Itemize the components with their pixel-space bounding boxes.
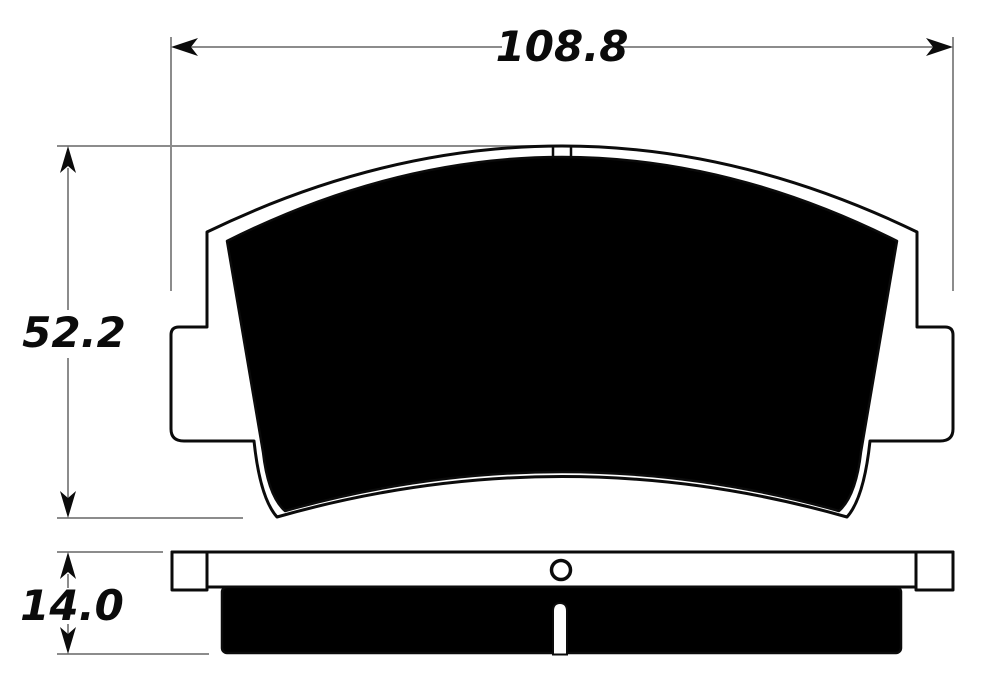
center-slot: [553, 603, 567, 655]
pad-side-view: [172, 552, 953, 655]
center-hole: [552, 561, 571, 580]
thickness-dimension-label: 14.0: [20, 581, 124, 630]
friction-material-front: [227, 157, 897, 511]
width-dimension-label: 108.8: [496, 22, 629, 71]
pad-front-view: [171, 146, 953, 517]
right-ear-tab-side: [916, 552, 953, 590]
brake-pad-dimensional-drawing: 108.8 52.2: [0, 0, 991, 682]
drawing-canvas: 108.8 52.2: [0, 0, 991, 682]
height-dimension-label: 52.2: [22, 308, 126, 357]
left-ear-tab-side: [172, 552, 207, 590]
